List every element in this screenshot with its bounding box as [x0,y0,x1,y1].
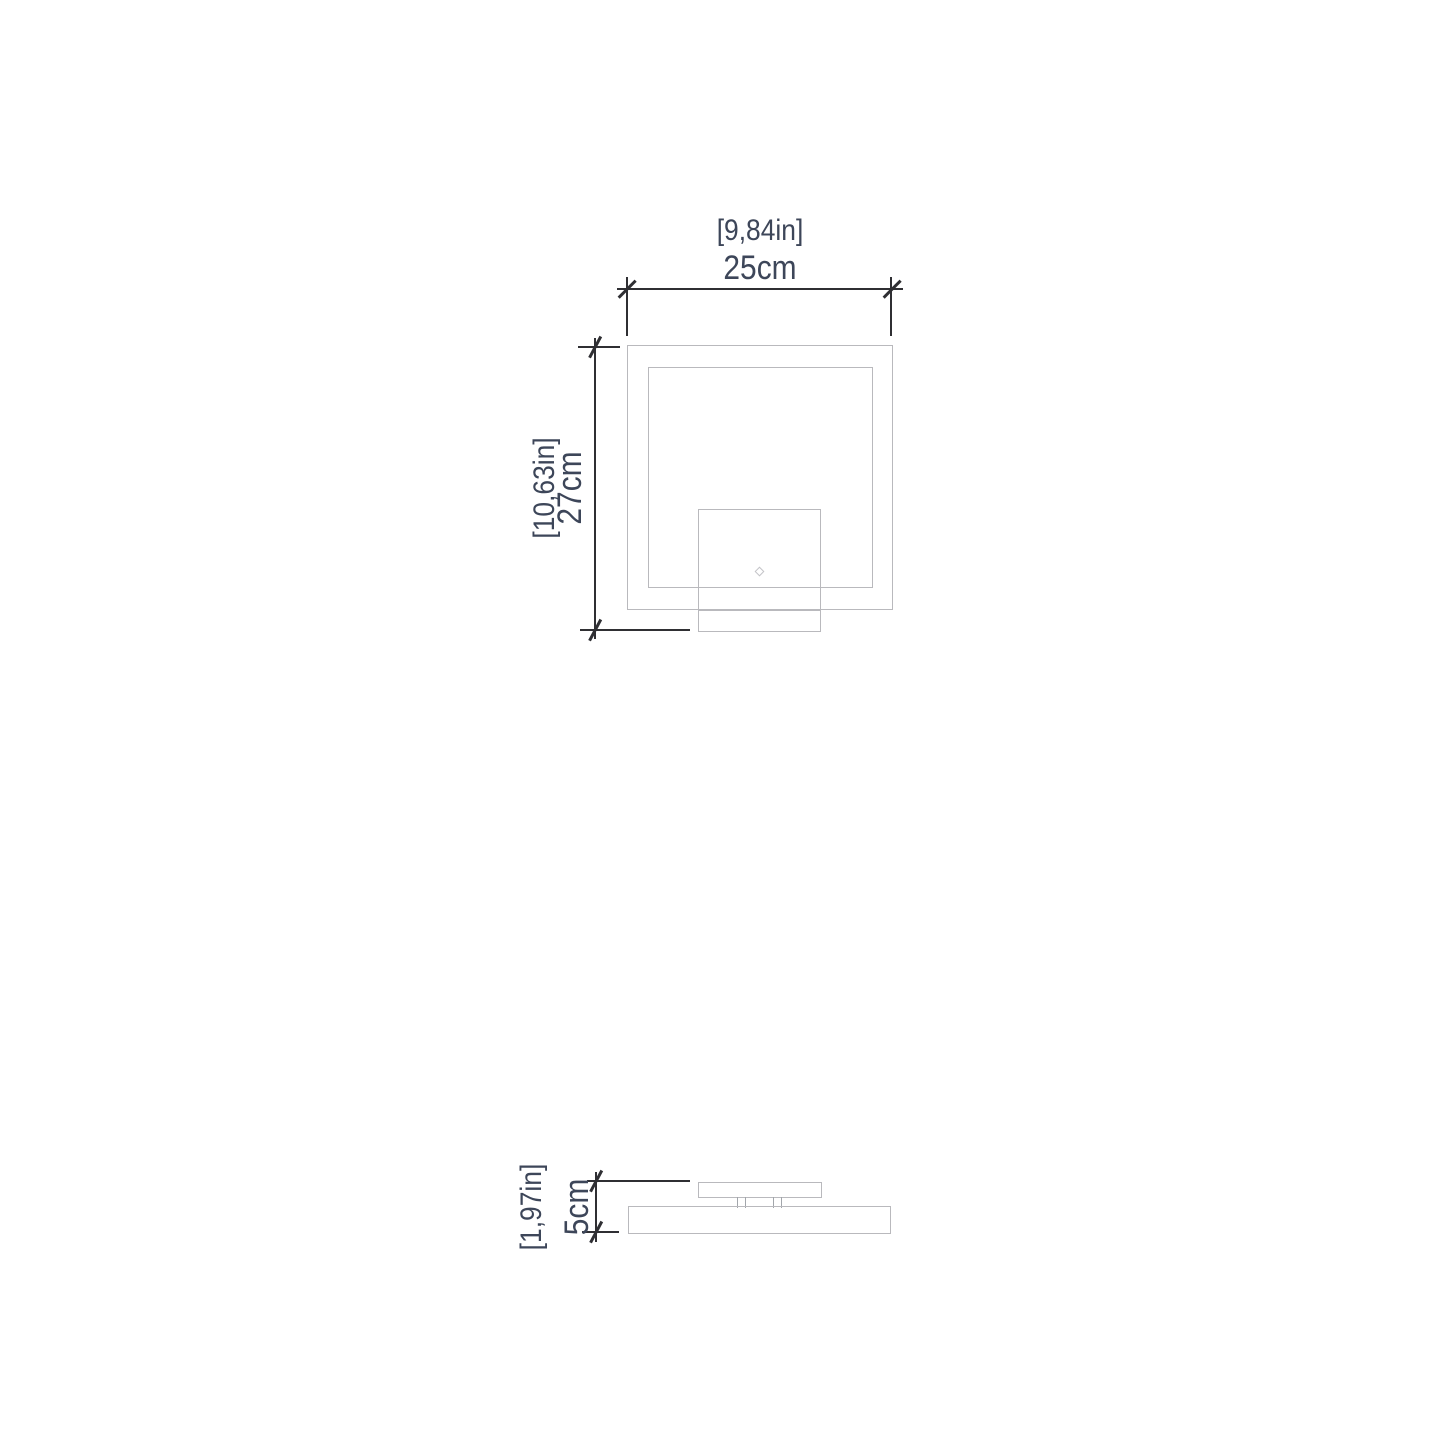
width-dimension-line [617,288,903,290]
depth-dimension-cm-label: 5cm [560,1112,594,1302]
mounting-tab [698,610,821,632]
height-extension-line-top [578,346,620,348]
side-backplate [698,1182,822,1198]
height-dimension-line [594,338,596,639]
technical-drawing-canvas: [9,84in] 25cm [10,63in] 27cm [0,0,1445,1445]
depth-extension-line-top [587,1180,690,1182]
side-body [628,1206,891,1234]
height-dimension-cm-label: 27cm [553,393,587,583]
width-dimension-inches-label: [9,84in] [628,216,892,248]
depth-dimension-inches-label: [1,97in] [517,1112,547,1302]
width-dimension-cm-label: 25cm [628,251,892,285]
driver-box [698,509,821,611]
